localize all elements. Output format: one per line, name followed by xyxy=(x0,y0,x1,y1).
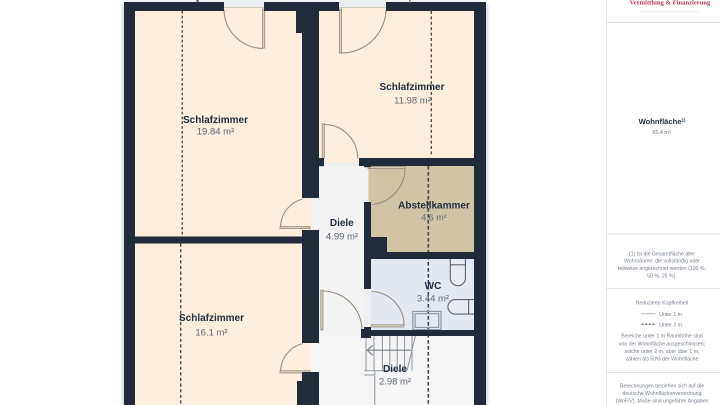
svg-text:Vermittlung & Finanzierung: Vermittlung & Finanzierung xyxy=(630,0,711,7)
svg-text:(1) Ist die Gesamtfläche aller: (1) Ist die Gesamtfläche aller xyxy=(629,251,696,257)
svg-text:teilweise angerechnet werden (: teilweise angerechnet werden (100 %, xyxy=(618,266,706,272)
svg-text:Wohnräume, die vollständig ode: Wohnräume, die vollständig oder xyxy=(624,259,700,265)
svg-text:Schlafzimmer: Schlafzimmer xyxy=(379,82,444,93)
svg-text:Unter 1 m: Unter 1 m xyxy=(659,312,682,318)
svg-text:Schlafzimmer: Schlafzimmer xyxy=(183,115,248,126)
svg-text:16.1 m²: 16.1 m² xyxy=(195,328,227,339)
svg-text:zählen als 50% der Wohnfläche: zählen als 50% der Wohnfläche xyxy=(626,356,699,362)
svg-text:Reduzierte Kopffreiheit: Reduzierte Kopffreiheit xyxy=(636,301,689,307)
svg-text:Diele: Diele xyxy=(330,218,354,229)
svg-text:4.99 m²: 4.99 m² xyxy=(326,232,358,243)
svg-text:4.6 m²: 4.6 m² xyxy=(421,213,447,223)
svg-text:deutsche Wohnflächenverordnung: deutsche Wohnflächenverordnung xyxy=(623,391,702,397)
svg-text:solche unter 2 m, aber über 1: solche unter 2 m, aber über 1 m, xyxy=(625,349,700,355)
svg-text:3.44 m²: 3.44 m² xyxy=(417,293,449,304)
svg-text:(WoFlV). Maße sind ungefähre A: (WoFlV). Maße sind ungefähre Angaben xyxy=(616,399,709,405)
svg-text:Unter 2 m: Unter 2 m xyxy=(659,323,682,329)
svg-text:11.98 m²: 11.98 m² xyxy=(394,96,431,107)
svg-text:WC: WC xyxy=(425,281,442,292)
svg-text:2.98 m²: 2.98 m² xyxy=(379,377,411,388)
svg-text:Diele: Diele xyxy=(383,364,407,375)
svg-text:19.84 m²: 19.84 m² xyxy=(197,127,235,138)
svg-text:Berechnungen beziehen sich auf: Berechnungen beziehen sich auf die xyxy=(620,383,704,389)
svg-text:Schlafzimmer: Schlafzimmer xyxy=(179,313,244,324)
svg-text:50 %, 25 %).: 50 %, 25 %). xyxy=(647,273,677,279)
svg-text:65.4 m²: 65.4 m² xyxy=(652,130,670,136)
svg-text:Abstellkammer: Abstellkammer xyxy=(398,201,470,212)
svg-text:Wohnfläche1): Wohnfläche1) xyxy=(639,117,686,126)
svg-text:Bereiche unter 1 m Raumhöhe si: Bereiche unter 1 m Raumhöhe sind xyxy=(621,334,703,340)
svg-text:von der Wohnfläche ausgeschlos: von der Wohnfläche ausgeschlossen; xyxy=(619,341,705,347)
